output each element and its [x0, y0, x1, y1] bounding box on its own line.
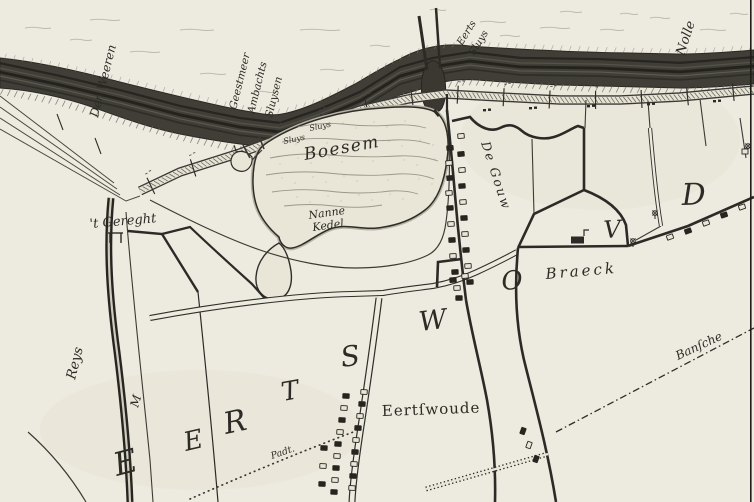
- house-symbol: [335, 442, 342, 447]
- house-symbol: [460, 199, 467, 204]
- house-symbol: [339, 418, 346, 423]
- house-symbol: [355, 426, 362, 431]
- label-village: Eertſwoude: [382, 399, 481, 420]
- house-symbol: [462, 232, 469, 237]
- house-symbol: [459, 183, 466, 188]
- house-symbol: [459, 167, 466, 172]
- house-symbol: [337, 430, 344, 435]
- house-symbol: [450, 254, 457, 259]
- house-symbol: [352, 450, 359, 455]
- house-symbol: [447, 145, 454, 150]
- historic-map: Boesem Nanne Kedel Sluys Sluys 't Geregh…: [0, 0, 754, 502]
- house-symbol: [456, 296, 462, 301]
- house-symbol: [334, 454, 341, 459]
- house-symbol: [467, 280, 474, 285]
- house-symbol: [320, 464, 327, 469]
- house-symbol: [331, 490, 338, 495]
- house-symbol: [321, 446, 328, 451]
- house-symbol: [447, 175, 454, 180]
- house-symbol: [351, 462, 358, 467]
- house-symbol: [446, 160, 453, 165]
- house-symbol: [341, 406, 348, 411]
- house-symbol: [454, 286, 461, 291]
- house-symbol: [462, 273, 469, 278]
- house-symbol: [343, 394, 350, 399]
- house-symbol: [353, 438, 360, 443]
- house-symbol: [332, 478, 339, 483]
- house-symbol: [448, 222, 455, 227]
- house-symbol: [465, 264, 472, 269]
- house-symbol: [350, 474, 357, 479]
- house-symbol: [461, 216, 468, 221]
- house-symbol: [333, 466, 340, 471]
- district-letter: O: [500, 266, 523, 297]
- house-symbol: [447, 205, 454, 210]
- house-symbol: [361, 390, 368, 395]
- district-letter: D: [680, 177, 706, 213]
- house-symbol: [446, 190, 453, 195]
- house-symbol: [452, 270, 459, 275]
- house-symbol: [449, 238, 456, 243]
- house-symbol: [458, 133, 465, 138]
- house-symbol: [349, 486, 356, 491]
- house-symbol: [357, 414, 364, 419]
- house-symbol: [359, 402, 366, 407]
- map-canvas: Boesem Nanne Kedel Sluys Sluys 't Geregh…: [0, 0, 754, 502]
- building-symbol: [742, 149, 748, 154]
- house-symbol: [463, 248, 470, 253]
- braeck-road: [518, 246, 628, 247]
- house-symbol: [458, 151, 465, 156]
- house-symbol: [319, 482, 326, 487]
- house-symbol: [450, 277, 457, 282]
